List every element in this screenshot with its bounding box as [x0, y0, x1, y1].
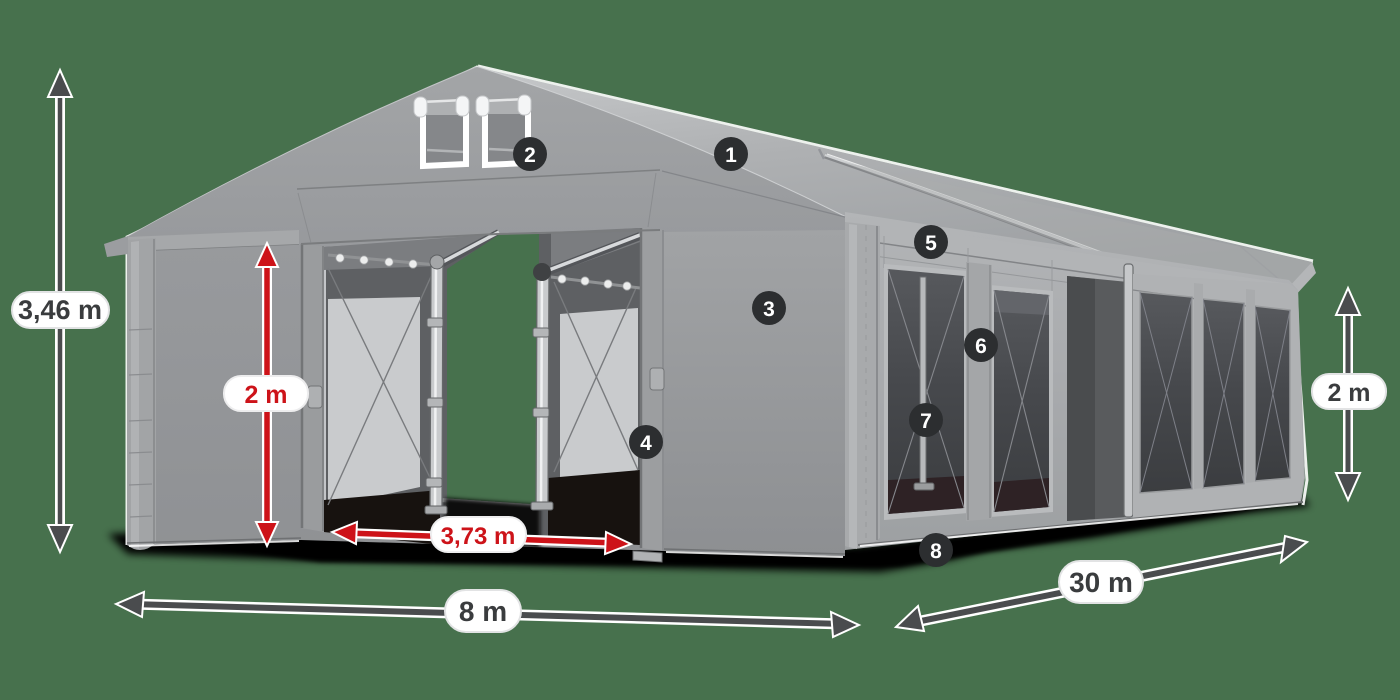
- svg-text:2 m: 2 m: [1327, 379, 1370, 407]
- svg-text:3: 3: [763, 298, 775, 321]
- svg-text:8: 8: [930, 540, 942, 563]
- svg-text:1: 1: [725, 144, 737, 167]
- svg-text:2: 2: [524, 144, 536, 167]
- svg-text:5: 5: [925, 232, 937, 255]
- svg-text:30 m: 30 m: [1069, 567, 1133, 598]
- svg-text:4: 4: [640, 432, 652, 455]
- svg-text:6: 6: [975, 335, 987, 358]
- svg-text:2 m: 2 m: [244, 381, 287, 409]
- svg-text:8 m: 8 m: [459, 596, 507, 627]
- svg-text:3,73 m: 3,73 m: [441, 523, 516, 550]
- svg-text:3,46 m: 3,46 m: [18, 295, 102, 325]
- svg-text:7: 7: [920, 410, 932, 433]
